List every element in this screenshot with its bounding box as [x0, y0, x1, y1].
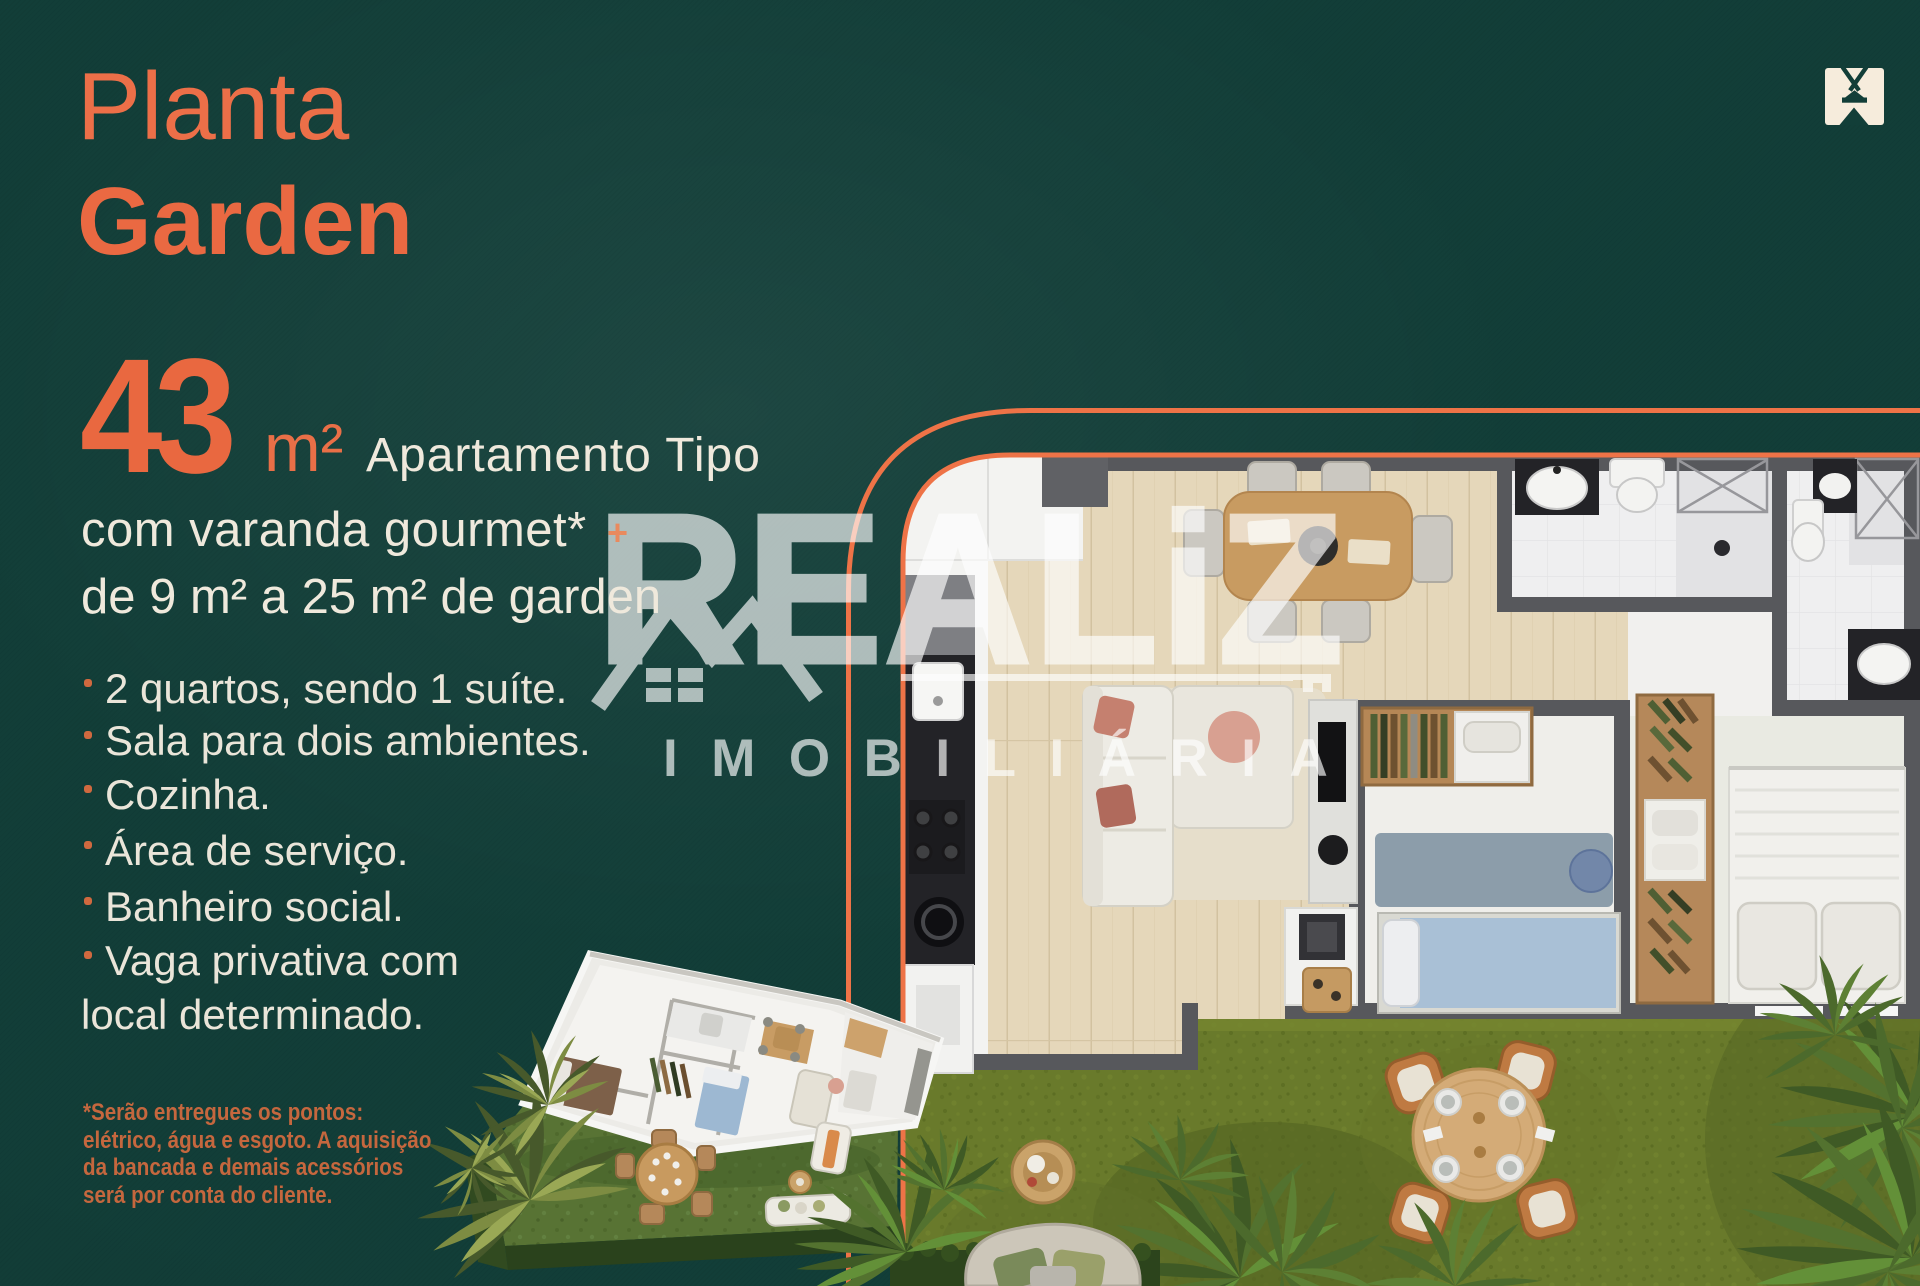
- svg-text:REALiZ: REALiZ: [597, 470, 1345, 707]
- svg-text:IMOBILIÁRIA: IMOBILIÁRIA: [663, 728, 1361, 788]
